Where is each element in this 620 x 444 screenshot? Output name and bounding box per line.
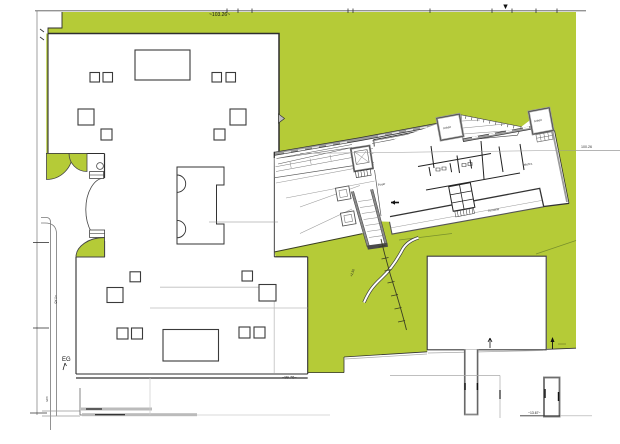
svg-text:~103.26~: ~103.26~ [209, 12, 230, 18]
svg-text:~99.76~: ~99.76~ [282, 375, 297, 380]
svg-text:EG: EG [62, 357, 71, 363]
svg-text:+0.45: +0.45 [54, 295, 58, 304]
svg-text:100.26: 100.26 [581, 145, 592, 149]
svg-text:~13.67~: ~13.67~ [528, 411, 540, 415]
svg-text:4.05: 4.05 [45, 396, 49, 402]
